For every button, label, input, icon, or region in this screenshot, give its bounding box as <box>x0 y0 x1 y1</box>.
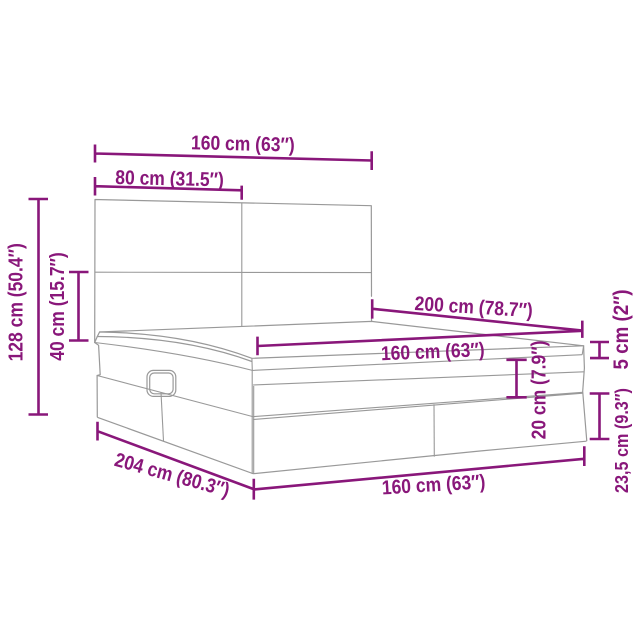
svg-text:128 cm (50.4″): 128 cm (50.4″) <box>4 243 26 361</box>
svg-text:160 cm (63″): 160 cm (63″) <box>191 131 295 156</box>
svg-text:5 cm (2″): 5 cm (2″) <box>610 289 633 369</box>
svg-text:80 cm (31.5″): 80 cm (31.5″) <box>115 166 224 191</box>
svg-text:40 cm (15.7″): 40 cm (15.7″) <box>46 252 68 361</box>
svg-text:23,5 cm (9.3″): 23,5 cm (9.3″) <box>611 388 632 493</box>
svg-text:160 cm (63″): 160 cm (63″) <box>381 338 485 364</box>
svg-text:20 cm (7.9″): 20 cm (7.9″) <box>527 341 549 440</box>
